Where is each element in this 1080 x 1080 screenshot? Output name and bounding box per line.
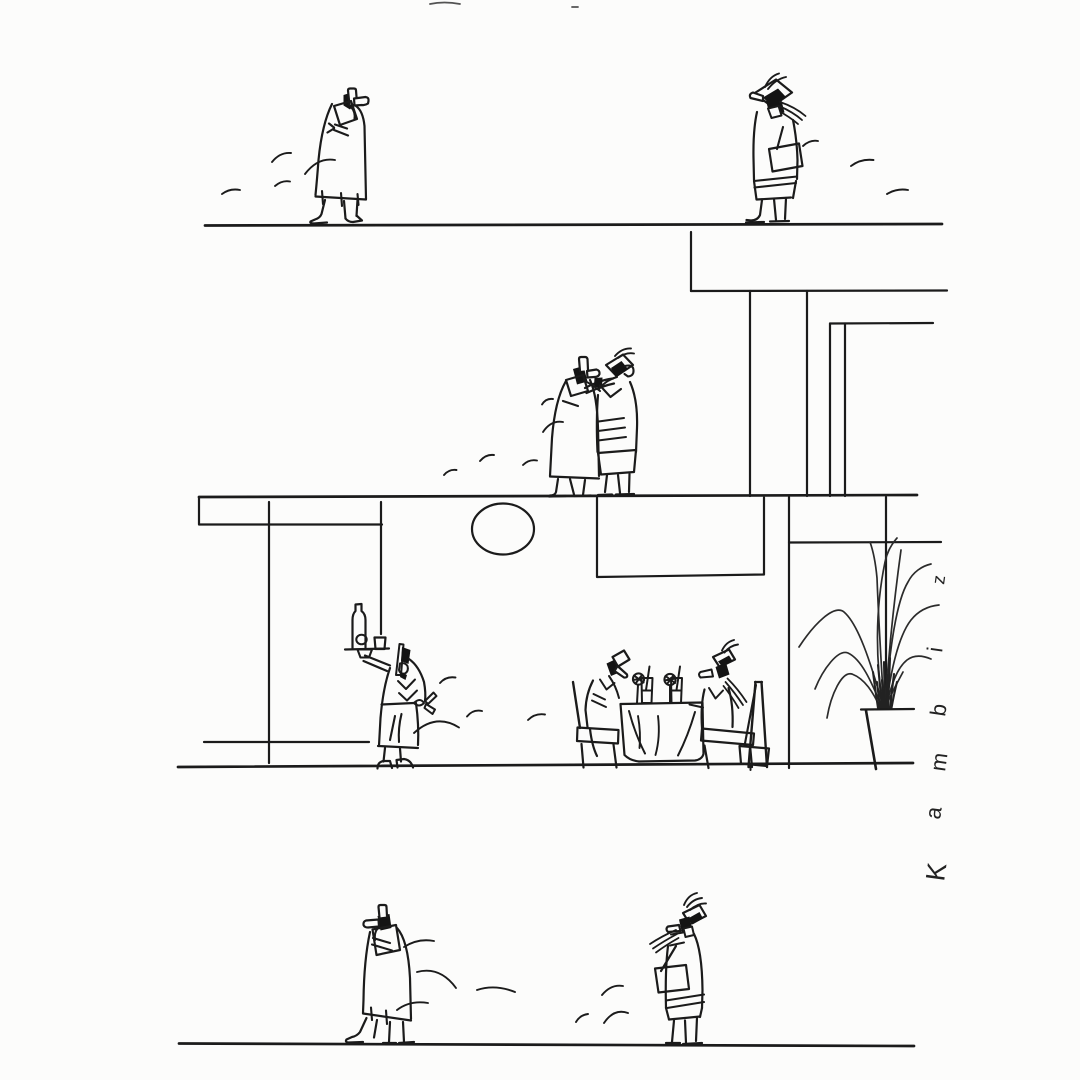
svg-text:m: m <box>925 751 952 773</box>
